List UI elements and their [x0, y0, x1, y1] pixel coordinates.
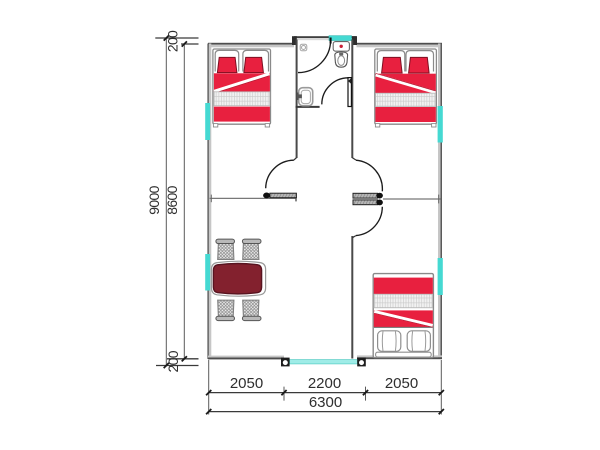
svg-text:200: 200	[165, 30, 181, 52]
svg-text:8600: 8600	[164, 185, 180, 214]
svg-text:200: 200	[165, 350, 181, 372]
svg-text:6300: 6300	[309, 394, 342, 411]
svg-text:2200: 2200	[308, 375, 341, 392]
svg-text:2050: 2050	[385, 375, 418, 392]
svg-text:9000: 9000	[146, 185, 162, 214]
svg-text:2050: 2050	[230, 375, 263, 392]
